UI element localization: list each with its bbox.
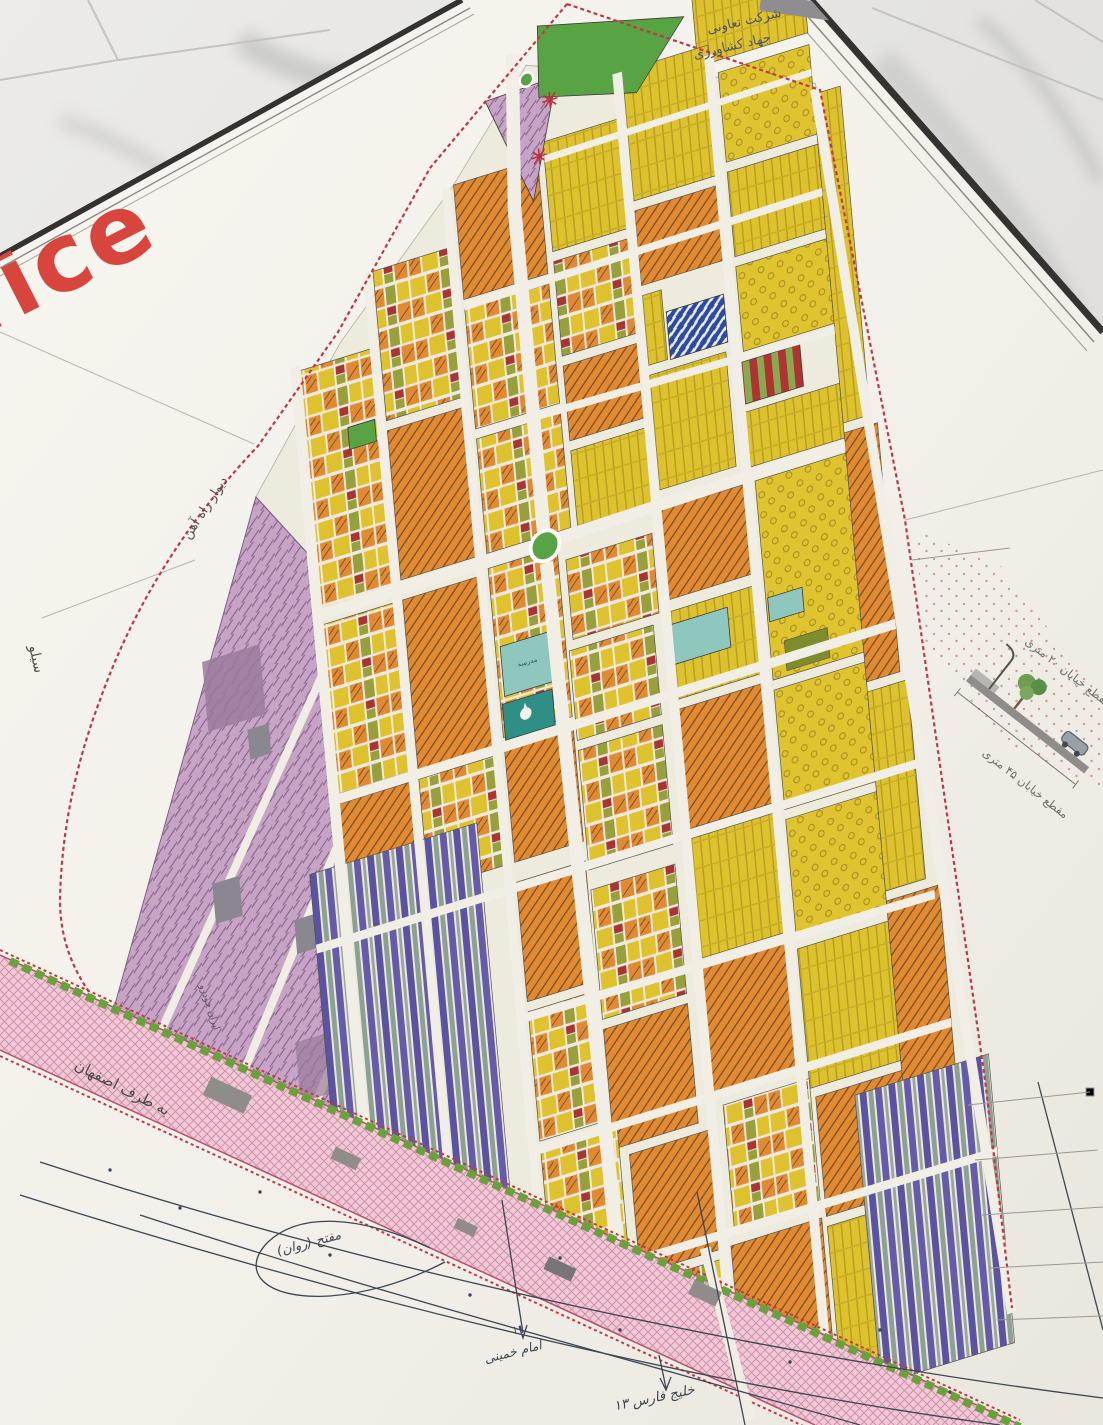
map-photo-canvas: fice [0, 0, 1103, 1425]
photo-of-zoning-map: fice [0, 0, 1103, 1425]
map-sheet: fice [0, 0, 1103, 1425]
workshop-strips-right [855, 1054, 1015, 1384]
